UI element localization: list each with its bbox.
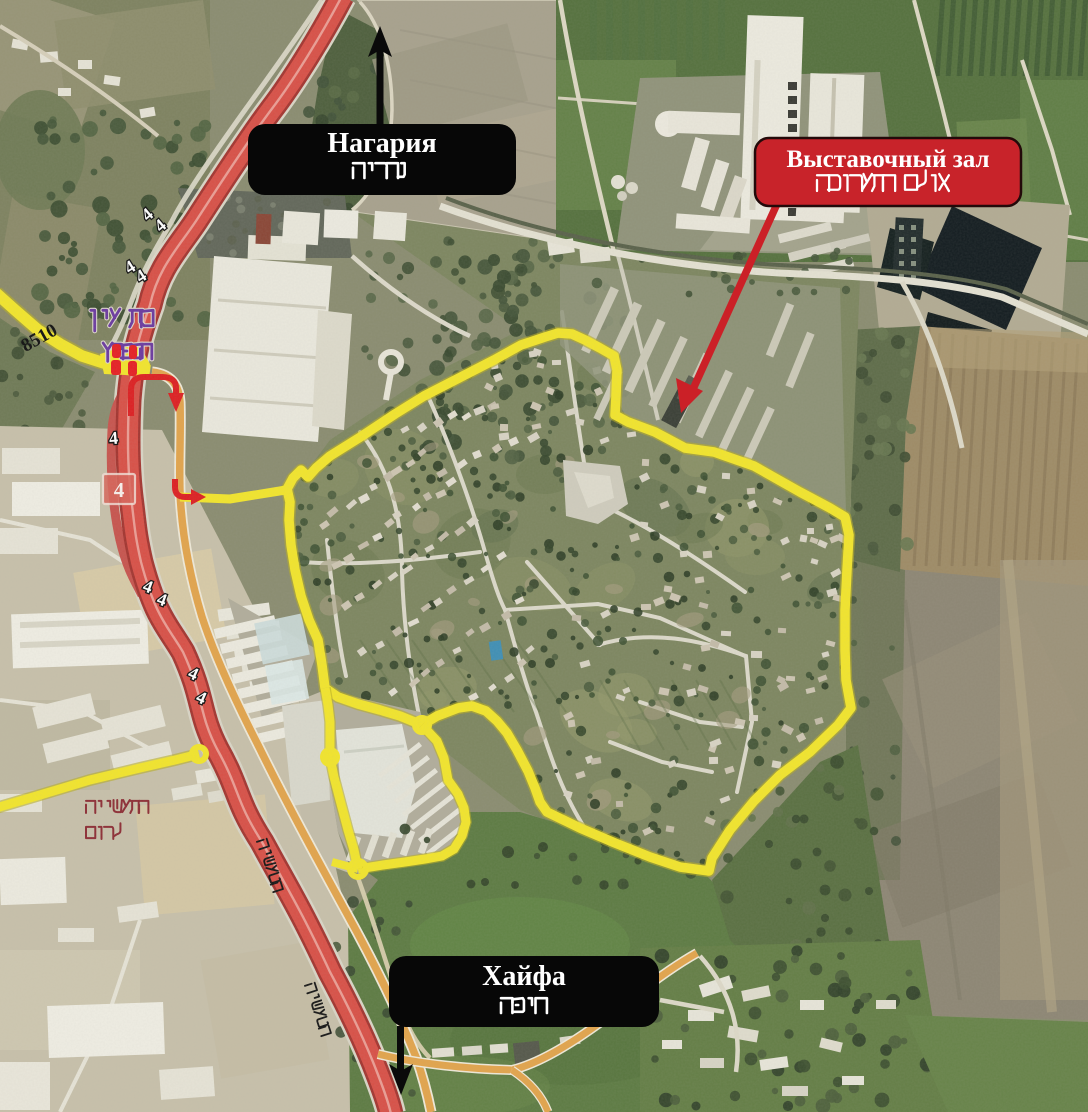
svg-text:Хайфа: Хайфа xyxy=(482,961,566,992)
svg-text:Нагария: Нагария xyxy=(327,128,436,159)
svg-text:Выставочный зал: Выставочный зал xyxy=(786,146,989,173)
